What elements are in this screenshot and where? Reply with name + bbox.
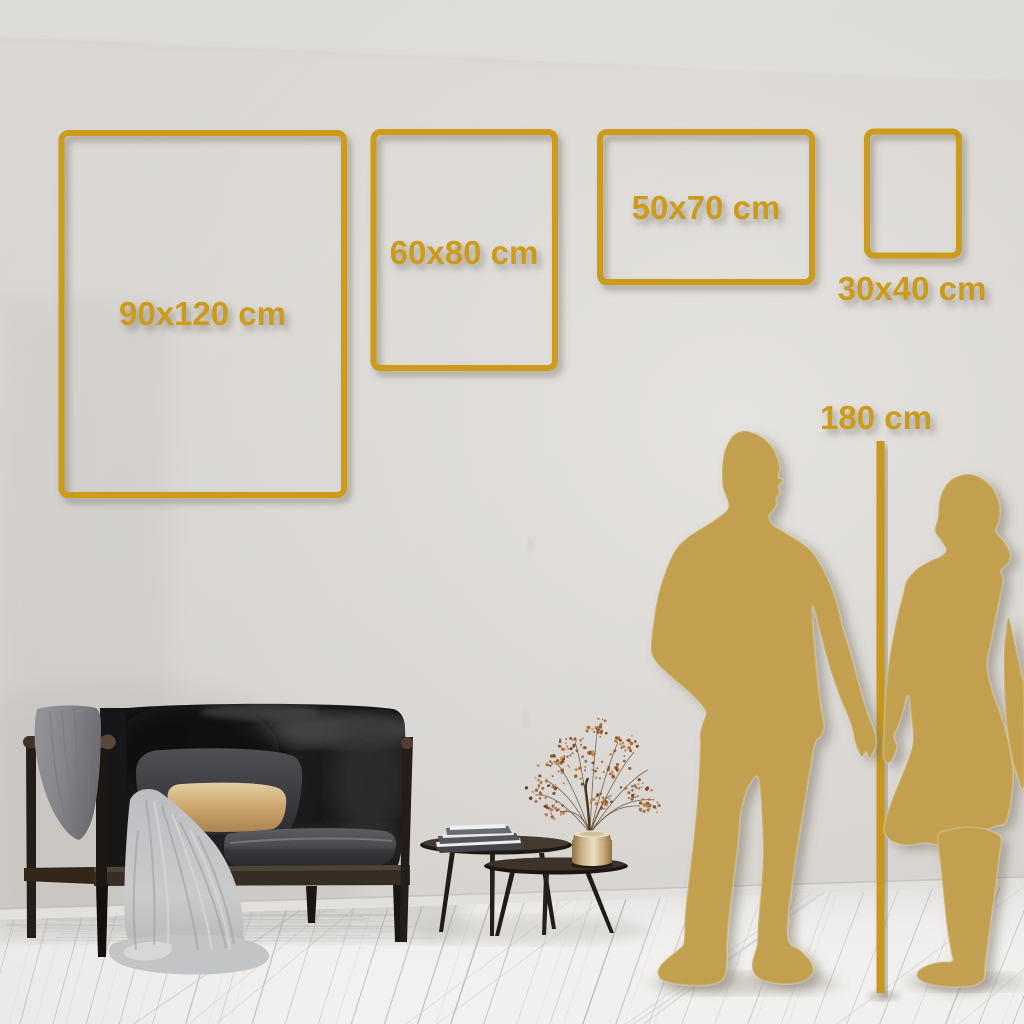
svg-text:180 cm: 180 cm [820, 399, 932, 436]
svg-text:50x70 cm: 50x70 cm [632, 189, 781, 226]
svg-text:30x40 cm: 30x40 cm [838, 270, 987, 307]
svg-text:60x80 cm: 60x80 cm [390, 234, 539, 271]
svg-text:90x120 cm: 90x120 cm [119, 295, 286, 332]
